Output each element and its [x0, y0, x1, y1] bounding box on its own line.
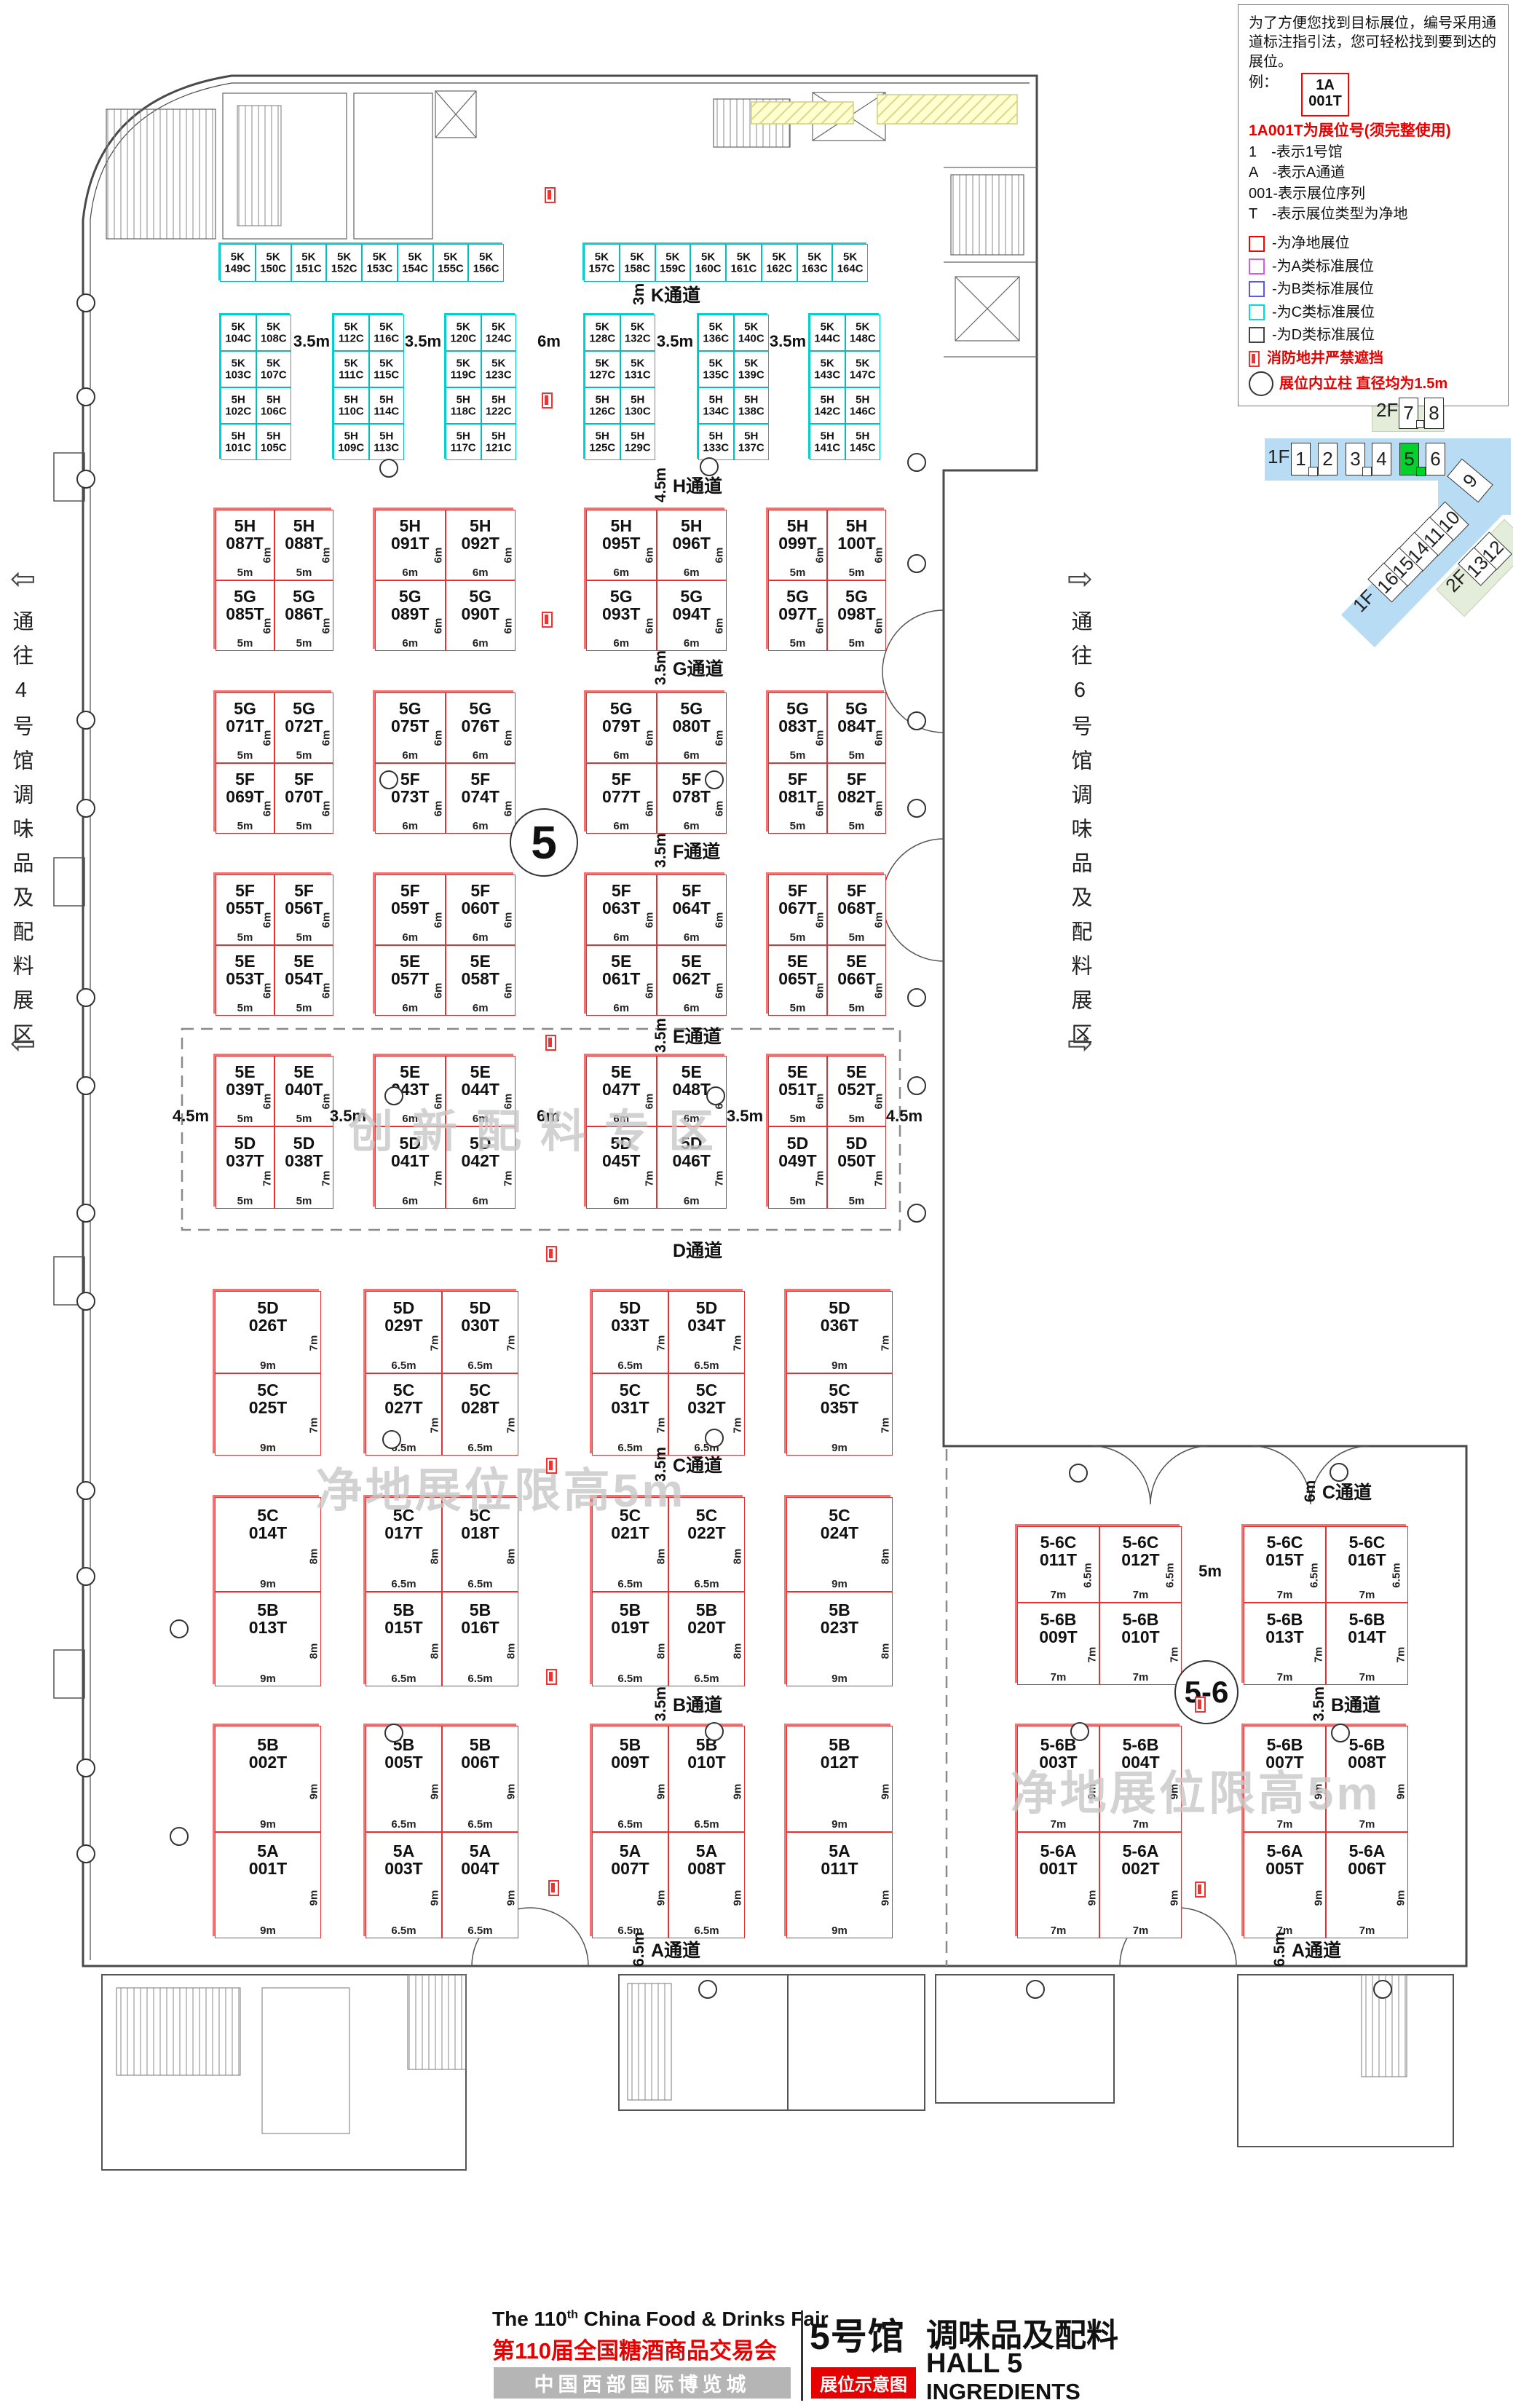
booth-5K120C[interactable]: 5K120C	[446, 315, 481, 351]
booth-block-cb-2: 5C017T6.5m8m5C018T6.5m8m5B015T6.5m8m5B01…	[363, 1495, 516, 1684]
booth-5K159C[interactable]: 5K159C	[655, 244, 691, 282]
booth-block-cb-4: 5C024T9m8m5B023T9m8m	[784, 1495, 890, 1684]
aisle-width-label: 6.5m	[1271, 1932, 1289, 1967]
pillar	[76, 1844, 95, 1863]
booth-5K124C[interactable]: 5K124C	[481, 315, 517, 351]
pillar	[76, 1076, 95, 1095]
booth-block-cb-1: 5C014T9m8m5B013T9m8m	[213, 1495, 319, 1684]
booth-5H133C[interactable]: 5H133C	[698, 424, 734, 460]
gap-dimension-label: 4.5m	[886, 1107, 923, 1126]
booth-5K135C[interactable]: 5K135C	[698, 351, 734, 387]
booth-5H106C[interactable]: 5H106C	[256, 387, 292, 424]
plan-badge: 展位示意图	[811, 2367, 916, 2399]
pillar	[76, 470, 95, 489]
aisle-label: D通道	[673, 1236, 722, 1263]
booth-5K140C[interactable]: 5K140C	[734, 315, 770, 351]
booth-5F064T[interactable]: 5F064T6m6m	[657, 875, 727, 945]
booth-block-ba-4: 5B012T9m9m5A011T9m9m	[784, 1724, 890, 1936]
pillar	[379, 459, 398, 478]
booth-5K149C[interactable]: 5K149C	[220, 244, 256, 282]
booth-5H130C[interactable]: 5H130C	[620, 387, 656, 424]
booth-5B009T[interactable]: 5B009T6.5m9m	[592, 1726, 668, 1832]
booth-5K115C[interactable]: 5K115C	[369, 351, 405, 387]
booth-5D030T[interactable]: 5D030T6.5m7m	[442, 1291, 518, 1373]
booth-5H146C[interactable]: 5H146C	[845, 387, 881, 424]
booth-5B016T[interactable]: 5B016T6.5m8m	[442, 1592, 518, 1686]
booth-block-ba-3: 5B009T6.5m9m5B010T6.5m9m5A007T6.5m9m5A00…	[590, 1724, 743, 1936]
booth-5E061T[interactable]: 5E061T6m6m	[586, 945, 657, 1016]
booth-5F055T[interactable]: 5F055T5m6m	[216, 875, 274, 945]
gap-dimension-label: 6m	[537, 332, 561, 351]
aisle-label: E通道	[673, 1022, 722, 1049]
booth-5K131C[interactable]: 5K131C	[620, 351, 656, 387]
booth-5G098T[interactable]: 5G098T5m6m	[827, 580, 886, 651]
fair-title-cn: 第110届全国糖酒商品交易会	[492, 2332, 777, 2365]
booth-5H142C[interactable]: 5H142C	[810, 387, 845, 424]
fire-well-icon	[548, 1880, 559, 1896]
booth-5H145C[interactable]: 5H145C	[845, 424, 881, 460]
booth-5D049T[interactable]: 5D049T5m7m	[768, 1126, 827, 1209]
pillar	[382, 1430, 401, 1449]
pillar	[705, 770, 724, 789]
booth-5K144C[interactable]: 5K144C	[810, 315, 845, 351]
booth-5A007T[interactable]: 5A007T6.5m9m	[592, 1832, 668, 1938]
gap-dimension-label: 3.5m	[657, 332, 693, 351]
booth-5C014T[interactable]: 5C014T9m8m	[215, 1497, 321, 1592]
fire-well-icon	[542, 392, 553, 408]
booth-5F063T[interactable]: 5F063T6m6m	[586, 875, 657, 945]
fire-well-icon	[1249, 351, 1260, 367]
right-arrow-icon: ⇨	[1067, 1025, 1093, 1061]
hall-name-en: HALL 5	[926, 2348, 1022, 2380]
booth-5K161C[interactable]: 5K161C	[726, 244, 762, 282]
booth-block-r56-ba-2: 5-6B007T7m9m5-6B008T7m9m5-6A005T7m9m5-6A…	[1241, 1724, 1406, 1936]
pillar	[76, 1758, 95, 1777]
booth-5-6C016T[interactable]: 5-6C016T7m6.5m	[1326, 1526, 1408, 1603]
booth-5K127C[interactable]: 5K127C	[585, 351, 620, 387]
booth-5-6C015T[interactable]: 5-6C015T7m6.5m	[1244, 1526, 1326, 1603]
booth-5G086T[interactable]: 5G086T5m6m	[274, 580, 333, 651]
pillar	[76, 1481, 95, 1500]
booth-block-fe-3: 5F063T6m6m5F064T6m6m5E061T6m6m5E062T6m6m	[584, 872, 724, 1014]
booth-5F060T[interactable]: 5F060T6m6m	[446, 875, 516, 945]
booth-5G089T[interactable]: 5G089T6m6m	[375, 580, 446, 651]
booth-5B013T[interactable]: 5B013T9m8m	[215, 1592, 321, 1686]
fire-well-icon	[545, 1035, 556, 1051]
booth-5G094T[interactable]: 5G094T6m6m	[657, 580, 727, 651]
minimap-floor-label: 1F	[1268, 446, 1294, 472]
booth-5F068T[interactable]: 5F068T5m6m	[827, 875, 886, 945]
booth-5G072T[interactable]: 5G072T5m6m	[274, 692, 333, 763]
booth-5D034T[interactable]: 5D034T6.5m7m	[668, 1291, 745, 1373]
booth-5E039T[interactable]: 5E039T5m6m	[216, 1056, 274, 1126]
booth-block-ba-1: 5B002T9m9m5A001T9m9m	[213, 1724, 319, 1936]
booth-5E066T[interactable]: 5E066T5m6m	[827, 945, 886, 1016]
pillar	[907, 988, 926, 1007]
booth-block-strip-right: 5K157C5K158C5K159C5K160C5K161C5K162C5K16…	[582, 242, 866, 280]
booth-5F067T[interactable]: 5F067T5m6m	[768, 875, 827, 945]
booth-block-dc-4: 5D036T9m7m5C035T9m7m	[784, 1289, 890, 1453]
aisle-width-label: 3m	[631, 283, 648, 305]
gap-dimension-label: 5m	[1198, 1562, 1222, 1581]
booth-5H100T[interactable]: 5H100T5m6m	[827, 510, 886, 580]
booth-5G083T[interactable]: 5G083T5m6m	[768, 692, 827, 763]
minimap-hall-8[interactable]: 8	[1424, 398, 1444, 429]
booth-block-gf-2: 5G075T6m6m5G076T6m6m5F073T6m6m5F074T6m6m	[373, 690, 513, 832]
pillar	[76, 1567, 95, 1586]
legend-type-label: -为C类标准展位	[1272, 303, 1375, 322]
booth-5K111C[interactable]: 5K111C	[333, 351, 369, 387]
pillar	[1070, 1722, 1089, 1741]
gap-dimension-label: 3.5m	[293, 332, 330, 351]
booth-5G085T[interactable]: 5G085T5m6m	[216, 580, 274, 651]
booth-5K139C[interactable]: 5K139C	[734, 351, 770, 387]
booth-5K148C[interactable]: 5K148C	[845, 315, 881, 351]
legend-example-line1: 1A	[1303, 77, 1348, 93]
title-block: The 110th China Food & Drinks Fair 第110届…	[0, 2297, 1513, 2408]
booth-5A003T[interactable]: 5A003T6.5m9m	[366, 1832, 442, 1938]
booth-5E052T[interactable]: 5E052T5m6m	[827, 1056, 886, 1126]
booth-5K155C[interactable]: 5K155C	[433, 244, 469, 282]
booth-5C028T[interactable]: 5C028T6.5m7m	[442, 1373, 518, 1456]
booth-5H113C[interactable]: 5H113C	[369, 424, 405, 460]
booth-5G075T[interactable]: 5G075T6m6m	[375, 692, 446, 763]
legend-example-booth: 1A 001T	[1301, 73, 1349, 117]
booth-5H088T[interactable]: 5H088T5m6m	[274, 510, 333, 580]
minimap-shape	[1416, 467, 1426, 476]
booth-5E058T[interactable]: 5E058T6m6m	[446, 945, 516, 1016]
pillar	[384, 1724, 403, 1742]
booth-5E054T[interactable]: 5E054T5m6m	[274, 945, 333, 1016]
booth-5K160C[interactable]: 5K160C	[690, 244, 726, 282]
booth-5K151C[interactable]: 5K151C	[291, 244, 327, 282]
watermark: 净地展位限高5m	[1011, 1756, 1381, 1823]
booth-5B020T[interactable]: 5B020T6.5m8m	[668, 1592, 745, 1686]
pillar	[705, 1722, 724, 1741]
aisle-width-label: 3.5m	[1311, 1686, 1328, 1721]
aisle-label: A通道	[651, 1936, 700, 1962]
minimap-shape	[1416, 420, 1424, 428]
booth-block-kblock-5: 5K136C5K140C5K135C5K139C5H134C5H138C5H13…	[697, 313, 767, 459]
booth-5H095T[interactable]: 5H095T6m6m	[586, 510, 657, 580]
type-a-swatch	[1249, 258, 1265, 275]
booth-5-6A002T[interactable]: 5-6A002T7m9m	[1099, 1832, 1182, 1938]
fire-well-icon	[545, 187, 556, 203]
aisle-width-label: 6.5m	[631, 1932, 648, 1967]
booth-5B006T[interactable]: 5B006T6.5m9m	[442, 1726, 518, 1832]
booth-5H109C[interactable]: 5H109C	[333, 424, 369, 460]
booth-5F081T[interactable]: 5F081T5m6m	[768, 763, 827, 834]
booth-5K153C[interactable]: 5K153C	[362, 244, 398, 282]
booth-5-6A001T[interactable]: 5-6A001T7m9m	[1017, 1832, 1099, 1938]
booth-5G084T[interactable]: 5G084T5m6m	[827, 692, 886, 763]
booth-5-6C011T[interactable]: 5-6C011T7m6.5m	[1017, 1526, 1099, 1603]
booth-5B002T[interactable]: 5B002T9m9m	[215, 1726, 321, 1832]
booth-5K108C[interactable]: 5K108C	[256, 315, 292, 351]
booth-5A001T[interactable]: 5A001T9m9m	[215, 1832, 321, 1938]
pillar	[907, 1204, 926, 1223]
legend-type-label: -为B类标准展位	[1272, 280, 1374, 299]
aisle-label: G通道	[673, 655, 723, 681]
booth-5H092T[interactable]: 5H092T6m6m	[446, 510, 516, 580]
booth-5K128C[interactable]: 5K128C	[585, 315, 620, 351]
booth-5C035T[interactable]: 5C035T9m7m	[786, 1373, 893, 1456]
booth-5F074T[interactable]: 5F074T6m6m	[446, 763, 516, 834]
booth-5H126C[interactable]: 5H126C	[585, 387, 620, 424]
booth-block-hg-1: 5H087T5m6m5H088T5m6m5G085T5m6m5G086T5m6m	[213, 508, 331, 649]
booth-5-6A006T[interactable]: 5-6A006T7m9m	[1326, 1832, 1408, 1938]
aisle-width-label: 3.5m	[652, 1018, 670, 1053]
category-en: INGREDIENTS	[926, 2379, 1081, 2405]
booth-5G079T[interactable]: 5G079T6m6m	[586, 692, 657, 763]
booth-5K107C[interactable]: 5K107C	[256, 351, 292, 387]
booth-5F059T[interactable]: 5F059T6m6m	[375, 875, 446, 945]
minimap-hall-6[interactable]: 6	[1426, 443, 1445, 475]
left-arrow-icon: ⇦	[10, 561, 36, 596]
booth-5E053T[interactable]: 5E053T5m6m	[216, 945, 274, 1016]
booth-5-6B010T[interactable]: 5-6B010T7m7m	[1099, 1603, 1182, 1685]
booth-5D033T[interactable]: 5D033T6.5m7m	[592, 1291, 668, 1373]
booth-5C027T[interactable]: 5C027T6.5m7m	[366, 1373, 442, 1456]
legend-type-label: -为净地展位	[1272, 234, 1350, 253]
booth-5K132C[interactable]: 5K132C	[620, 315, 656, 351]
booth-5B005T[interactable]: 5B005T6.5m9m	[366, 1726, 442, 1832]
booth-block-r56-ba-1: 5-6B003T7m9m5-6B004T7m9m5-6A001T7m9m5-6A…	[1015, 1724, 1180, 1936]
booth-5H101C[interactable]: 5H101C	[221, 424, 256, 460]
aisle-label: A通道	[1292, 1936, 1341, 1962]
booth-block-hg-2: 5H091T6m6m5H092T6m6m5G089T6m6m5G090T6m6m	[373, 508, 513, 649]
booth-block-strip-left: 5K149C5K150C5K151C5K152C5K153C5K154C5K15…	[218, 242, 502, 280]
fire-well-icon	[1195, 1697, 1206, 1713]
booth-5A008T[interactable]: 5A008T6.5m9m	[668, 1832, 745, 1938]
booth-block-cb-3: 5C021T6.5m8m5C022T6.5m8m5B019T6.5m8m5B02…	[590, 1495, 743, 1684]
booth-5H096T[interactable]: 5H096T6m6m	[657, 510, 727, 580]
booth-5H134C[interactable]: 5H134C	[698, 387, 734, 424]
booth-5K147C[interactable]: 5K147C	[845, 351, 881, 387]
booth-5K156C[interactable]: 5K156C	[468, 244, 504, 282]
type-d-swatch	[1249, 327, 1265, 343]
fire-well-icon	[1195, 1882, 1206, 1898]
minimap-hall-4[interactable]: 4	[1372, 443, 1391, 475]
legend-rule: T -表示展位类型为净地	[1249, 205, 1498, 224]
fair-title-en: The 110th China Food & Drinks Fair	[492, 2308, 829, 2331]
booth-5B019T[interactable]: 5B019T6.5m8m	[592, 1592, 668, 1686]
pillar	[1331, 1724, 1350, 1742]
booth-5H117C[interactable]: 5H117C	[446, 424, 481, 460]
booth-block-fe-4: 5F067T5m6m5F068T5m6m5E065T5m6m5E066T5m6m	[766, 872, 884, 1014]
pillar	[705, 1429, 724, 1448]
pillar	[76, 711, 95, 730]
booth-5G097T[interactable]: 5G097T5m6m	[768, 580, 827, 651]
pillar	[1069, 1464, 1088, 1483]
fire-well-icon	[546, 1246, 557, 1262]
booth-5C024T[interactable]: 5C024T9m8m	[786, 1497, 893, 1592]
booth-block-gf-3: 5G079T6m6m5G080T6m6m5F077T6m6m5F078T6m6m	[584, 690, 724, 832]
booth-5G090T[interactable]: 5G090T6m6m	[446, 580, 516, 651]
booth-5H114C[interactable]: 5H114C	[369, 387, 405, 424]
legend-type-label: -为A类标准展位	[1272, 257, 1374, 276]
booth-block-hg-4: 5H099T5m6m5H100T5m6m5G097T5m6m5G098T5m6m	[766, 508, 884, 649]
booth-5K143C[interactable]: 5K143C	[810, 351, 845, 387]
legend-rule: 001-表示展位序列	[1249, 184, 1498, 203]
booth-block-ba-2: 5B005T6.5m9m5B006T6.5m9m5A003T6.5m9m5A00…	[363, 1724, 516, 1936]
booth-5K158C[interactable]: 5K158C	[620, 244, 655, 282]
booth-5D026T[interactable]: 5D026T9m7m	[215, 1291, 321, 1373]
booth-5D037T[interactable]: 5D037T5m7m	[216, 1126, 274, 1209]
booth-5H121C[interactable]: 5H121C	[481, 424, 517, 460]
booth-5K154C[interactable]: 5K154C	[398, 244, 433, 282]
aisle-label: B通道	[1331, 1691, 1380, 1717]
booth-5B015T[interactable]: 5B015T6.5m8m	[366, 1592, 442, 1686]
gap-dimension-label: 4.5m	[173, 1107, 209, 1126]
booth-5H137C[interactable]: 5H137C	[734, 424, 770, 460]
booth-5K150C[interactable]: 5K150C	[256, 244, 291, 282]
booth-5K164C[interactable]: 5K164C	[832, 244, 868, 282]
gap-dimension-label: 3.5m	[770, 332, 806, 351]
pillar	[700, 457, 719, 476]
booth-5E065T[interactable]: 5E065T5m6m	[768, 945, 827, 1016]
booth-5F082T[interactable]: 5F082T5m6m	[827, 763, 886, 834]
booth-5K112C[interactable]: 5K112C	[333, 315, 369, 351]
booth-5A004T[interactable]: 5A004T6.5m9m	[442, 1832, 518, 1938]
aisle-width-label: 3.5m	[652, 833, 670, 868]
pillar	[907, 799, 926, 818]
booth-5H129C[interactable]: 5H129C	[620, 424, 656, 460]
legend-pillar-note: 展位内立柱 直径均为1.5m	[1279, 374, 1447, 393]
booth-5H122C[interactable]: 5H122C	[481, 387, 517, 424]
booth-5K119C[interactable]: 5K119C	[446, 351, 481, 387]
aisle-width-label: 3.5m	[652, 1686, 670, 1721]
booth-5K136C[interactable]: 5K136C	[698, 315, 734, 351]
booth-5D029T[interactable]: 5D029T6.5m7m	[366, 1291, 442, 1373]
minimap-hall-7[interactable]: 7	[1399, 398, 1418, 429]
booth-5G093T[interactable]: 5G093T6m6m	[586, 580, 657, 651]
booth-5B012T[interactable]: 5B012T9m9m	[786, 1726, 893, 1832]
pillar	[1026, 1980, 1045, 1999]
minimap-hall-2[interactable]: 2	[1318, 443, 1338, 475]
booth-5E062T[interactable]: 5E062T6m6m	[657, 945, 727, 1016]
booth-5H102C[interactable]: 5H102C	[221, 387, 256, 424]
pillar	[76, 293, 95, 312]
booth-5F077T[interactable]: 5F077T6m6m	[586, 763, 657, 834]
booth-5K116C[interactable]: 5K116C	[369, 315, 405, 351]
aisle-width-label: 3.5m	[652, 650, 670, 685]
legend-note: 1A001T为展位号(须完整使用)	[1249, 121, 1498, 141]
venue-bar: 中国西部国际博览城	[494, 2367, 791, 2399]
booth-5-6B014T[interactable]: 5-6B014T7m7m	[1326, 1603, 1408, 1685]
booth-5G080T[interactable]: 5G080T6m6m	[657, 692, 727, 763]
booth-5-6B009T[interactable]: 5-6B009T7m7m	[1017, 1603, 1099, 1685]
booth-5A011T[interactable]: 5A011T9m9m	[786, 1832, 893, 1938]
booth-5H138C[interactable]: 5H138C	[734, 387, 770, 424]
fire-well-icon	[542, 612, 553, 628]
booth-5-6C012T[interactable]: 5-6C012T7m6.5m	[1099, 1526, 1182, 1603]
booth-block-kblock-3: 5K120C5K124C5K119C5K123C5H118C5H122C5H11…	[444, 313, 515, 459]
aisle-label: H通道	[673, 472, 722, 498]
booth-5K103C[interactable]: 5K103C	[221, 351, 256, 387]
booth-5C025T[interactable]: 5C025T9m7m	[215, 1373, 321, 1456]
booth-5H110C[interactable]: 5H110C	[333, 387, 369, 424]
booth-block-ed-4: 5E051T5m6m5E052T5m6m5D049T5m7m5D050T5m7m	[766, 1054, 884, 1207]
pillar	[379, 770, 398, 789]
legend-intro: 为了方便您找到目标展位，编号采用通道标注指引法，您可轻松找到要到达的展位。	[1249, 14, 1498, 71]
booth-5K123C[interactable]: 5K123C	[481, 351, 517, 387]
aisle-label: K通道	[651, 281, 700, 307]
booth-5H141C[interactable]: 5H141C	[810, 424, 845, 460]
pillar	[76, 387, 95, 406]
booth-5B010T[interactable]: 5B010T6.5m9m	[668, 1726, 745, 1832]
booth-5H091T[interactable]: 5H091T6m6m	[375, 510, 446, 580]
booth-5K152C[interactable]: 5K152C	[326, 244, 362, 282]
booth-5F056T[interactable]: 5F056T5m6m	[274, 875, 333, 945]
pillar-icon	[1249, 371, 1273, 396]
booth-5F070T[interactable]: 5F070T5m6m	[274, 763, 333, 834]
legend-panel: 为了方便您找到目标展位，编号采用通道标注指引法，您可轻松找到要到达的展位。 例：…	[1238, 4, 1509, 406]
pillar	[76, 799, 95, 818]
booth-5H118C[interactable]: 5H118C	[446, 387, 481, 424]
pillar	[698, 1980, 717, 1999]
booth-5H087T[interactable]: 5H087T5m6m	[216, 510, 274, 580]
legend-type-label: -为D类标准展位	[1272, 325, 1375, 344]
booth-5E051T[interactable]: 5E051T5m6m	[768, 1056, 827, 1126]
booth-5E040T[interactable]: 5E040T5m6m	[274, 1056, 333, 1126]
hall-marker-5: 5	[510, 808, 578, 877]
type-c-swatch	[1249, 304, 1265, 320]
clear-booth-swatch	[1249, 236, 1265, 252]
booth-5G071T[interactable]: 5G071T5m6m	[216, 692, 274, 763]
fire-well-icon	[546, 1669, 557, 1685]
booth-block-fe-1: 5F055T5m6m5F056T5m6m5E053T5m6m5E054T5m6m	[213, 872, 331, 1014]
left-corridor-label: 通往4号馆调味品及配料展区	[6, 610, 36, 1057]
booth-5D036T[interactable]: 5D036T9m7m	[786, 1291, 893, 1373]
booth-5D038T[interactable]: 5D038T5m7m	[274, 1126, 333, 1209]
booth-5F069T[interactable]: 5F069T5m6m	[216, 763, 274, 834]
pillar	[907, 453, 926, 472]
legend-example-label: 例：	[1249, 73, 1278, 92]
booth-5K162C[interactable]: 5K162C	[762, 244, 797, 282]
booth-5B023T[interactable]: 5B023T9m8m	[786, 1592, 893, 1686]
gap-dimension-label: 3.5m	[405, 332, 441, 351]
legend-example-line2: 001T	[1303, 93, 1348, 109]
booth-5-6A005T[interactable]: 5-6A005T7m9m	[1244, 1832, 1326, 1938]
aisle-label: B通道	[673, 1691, 722, 1717]
right-arrow-icon: ⇨	[1067, 561, 1093, 596]
minimap-shape	[1308, 467, 1318, 476]
booth-block-kblock-2: 5K112C5K116C5K111C5K115C5H110C5H114C5H10…	[332, 313, 403, 459]
pillar	[76, 988, 95, 1007]
booth-5-6B013T[interactable]: 5-6B013T7m7m	[1244, 1603, 1326, 1685]
booth-5K157C[interactable]: 5K157C	[584, 244, 620, 282]
booth-5H125C[interactable]: 5H125C	[585, 424, 620, 460]
pillar	[907, 711, 926, 730]
legend-rule: A -表示A通道	[1249, 163, 1498, 182]
booth-5H105C[interactable]: 5H105C	[256, 424, 292, 460]
booth-5C031T[interactable]: 5C031T6.5m7m	[592, 1373, 668, 1456]
minimap-hall-1[interactable]: 1	[1291, 443, 1311, 475]
pillar	[907, 1076, 926, 1095]
legend-rule: 1 -表示1号馆	[1249, 143, 1498, 162]
hall-name-cn: 5号馆	[810, 2308, 905, 2360]
booth-5H099T[interactable]: 5H099T5m6m	[768, 510, 827, 580]
booth-5E057T[interactable]: 5E057T6m6m	[375, 945, 446, 1016]
legend-example: 例： 1A 001T	[1249, 73, 1498, 117]
minimap-floor-label: 2F	[1376, 399, 1401, 425]
booth-5D050T[interactable]: 5D050T5m7m	[827, 1126, 886, 1209]
booth-5G076T[interactable]: 5G076T6m6m	[446, 692, 516, 763]
booth-5K163C[interactable]: 5K163C	[797, 244, 833, 282]
booth-5K104C[interactable]: 5K104C	[221, 315, 256, 351]
booth-block-kblock-1: 5K104C5K108C5K103C5K107C5H102C5H106C5H10…	[219, 313, 290, 459]
